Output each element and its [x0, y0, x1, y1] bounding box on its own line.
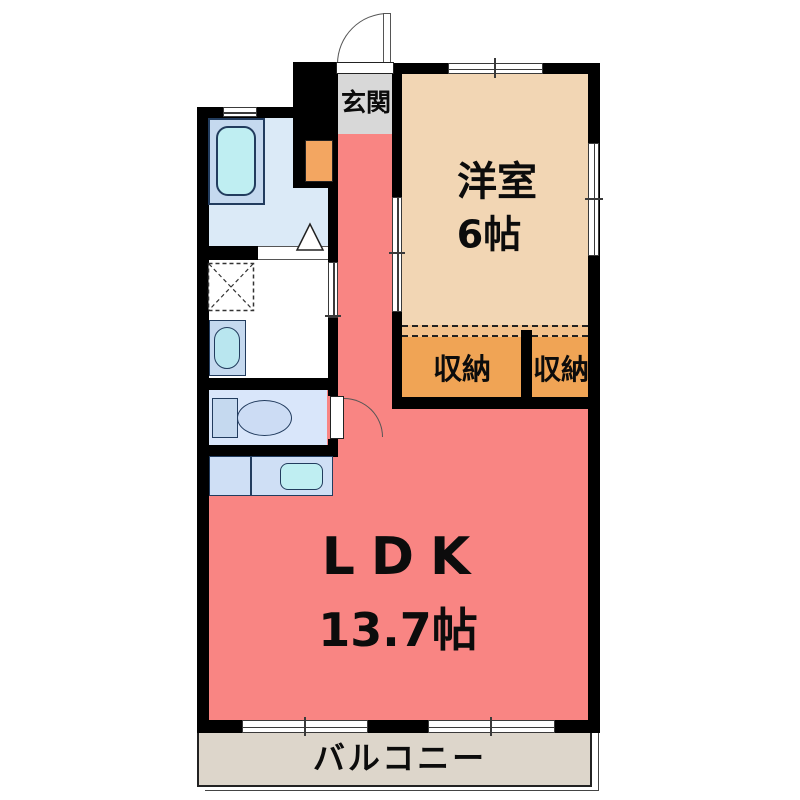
- closet-left-label: 収納: [433, 346, 491, 388]
- genkan-label: 玄関: [341, 83, 391, 119]
- yoshitsu-label: 洋室: [457, 149, 537, 207]
- balcony-label: バルコニー: [313, 733, 487, 779]
- entrance-door-leaf: [336, 62, 394, 74]
- window-ldk-bottom-right: [428, 720, 555, 733]
- window-yoshitsu-top: [448, 63, 543, 74]
- window-yoshitsu-top-tick: [494, 58, 496, 78]
- sliding-door-washroom: [328, 262, 338, 318]
- sliding-door-yoshitsu-tick: [389, 252, 405, 254]
- entrance-door-arc: [337, 13, 388, 64]
- shoe-cabinet: [305, 140, 333, 182]
- kitchen-sink: [280, 463, 323, 490]
- window-ldk-bottom-right-tick: [490, 717, 492, 736]
- ldk-label: LDK: [322, 527, 487, 587]
- kitchen-counter-divider: [250, 457, 252, 495]
- window-yoshitsu-right: [588, 143, 599, 256]
- toilet-door-leaf: [330, 396, 344, 439]
- yoshitsu-size-label: 6帖: [457, 204, 521, 259]
- wall-closet-divider: [521, 330, 532, 397]
- window-bathroom-top: [223, 107, 257, 117]
- wall-washroom-toilet: [197, 378, 338, 390]
- ldk-size-label: 13.7帖: [318, 594, 478, 660]
- window-ldk-bottom-left-tick: [304, 717, 306, 736]
- toilet-bowl: [237, 400, 292, 436]
- closet-transition-strip: [402, 325, 588, 337]
- wall-bath-washroom: [197, 246, 258, 260]
- window-yoshitsu-right-tick: [585, 198, 603, 200]
- washing-machine-pan: [207, 262, 255, 312]
- sliding-door-yoshitsu: [392, 197, 402, 312]
- entrance-door-open-leaf: [383, 13, 391, 63]
- toilet-tank: [212, 398, 238, 438]
- wall-closet-bottom: [392, 397, 600, 409]
- wall-yoshitsu-left-upper: [392, 63, 402, 197]
- bathroom-door-triangle: [294, 222, 326, 252]
- wash-basin: [214, 327, 240, 369]
- bathtub: [216, 126, 256, 196]
- floor-plan: 玄関 洋室 6帖 収納 収納 LDK 13.7帖 バルコニー: [0, 0, 800, 800]
- wall-yoshitsu-left-lower: [392, 312, 402, 409]
- closet-right-label: 収納: [533, 348, 589, 388]
- sliding-door-washroom-tick: [325, 315, 341, 317]
